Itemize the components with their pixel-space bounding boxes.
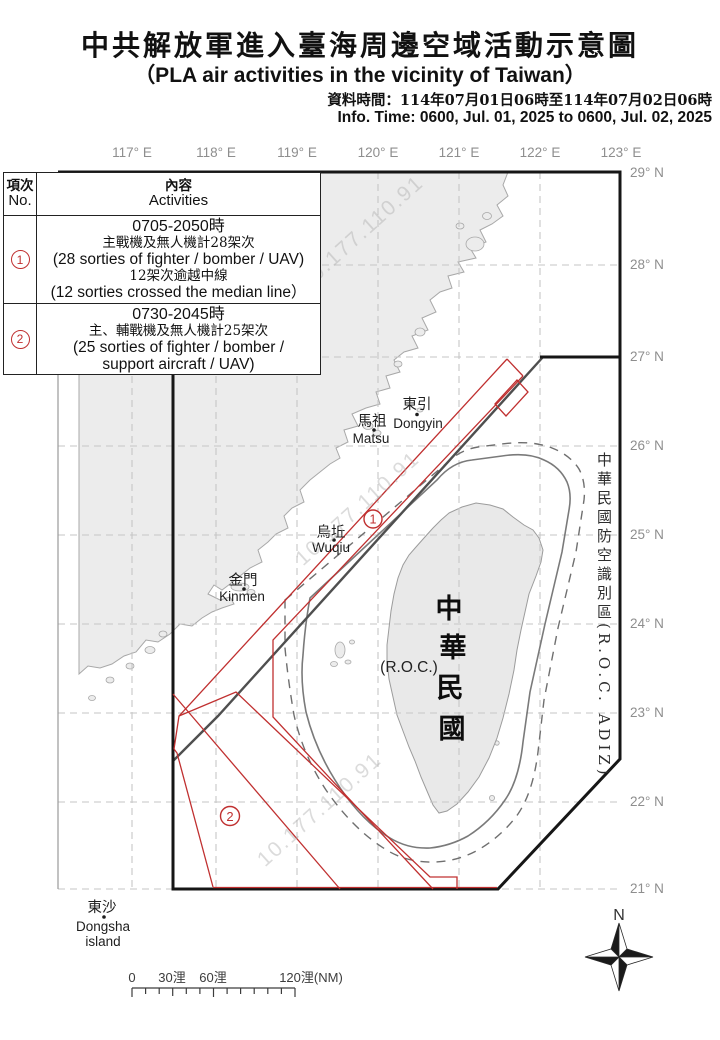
svg-text:2: 2	[226, 809, 233, 824]
place-wuqiu: 烏坵 Wuqiu	[312, 524, 350, 555]
row-2-en-sorties-1: (25 sorties of fighter / bomber /	[73, 339, 284, 356]
svg-text:Wuqiu: Wuqiu	[312, 540, 350, 555]
svg-text:120° E: 120° E	[358, 145, 399, 160]
pla-activity-map-page: 中共解放軍進入臺海周邊空域活動示意圖 （PLA air activities i…	[0, 0, 720, 1040]
table-row-1-content: 0705-2050時 主戰機及無人機計28架次 (28 sorties of f…	[37, 216, 320, 304]
roc-abbrev-label: (R.O.C.)	[380, 659, 438, 676]
compass-rose: N	[585, 907, 653, 991]
latitude-labels: 29° N 28° N 27° N 26° N 25° N 24° N 23° …	[630, 165, 664, 896]
table-header-activities: 內容 Activities	[37, 173, 320, 216]
svg-text:26° N: 26° N	[630, 438, 664, 453]
table-row-1-no: 1	[4, 216, 37, 304]
svg-text:25° N: 25° N	[630, 527, 664, 542]
svg-text:60浬: 60浬	[199, 970, 226, 985]
row-2-en-sorties-2: support aircraft / UAV)	[102, 356, 254, 373]
svg-text:island: island	[85, 934, 120, 949]
svg-text:烏坵: 烏坵	[317, 524, 346, 541]
svg-text:Kinmen: Kinmen	[219, 589, 265, 604]
svg-text:122° E: 122° E	[520, 145, 561, 160]
svg-text:123° E: 123° E	[601, 145, 642, 160]
svg-text:東沙: 東沙	[88, 899, 117, 916]
longitude-labels: 117° E 118° E 119° E 120° E 121° E 122° …	[112, 145, 641, 160]
svg-text:中: 中	[436, 594, 463, 625]
table-row-2-content: 0730-2045時 主、輔戰機及無人機計25架次 (25 sorties of…	[37, 304, 320, 374]
svg-text:22° N: 22° N	[630, 794, 664, 809]
activity-area-1-outline	[507, 359, 523, 376]
row-1-en-median: (12 sorties crossed the median line）	[51, 284, 307, 301]
svg-text:0: 0	[128, 970, 135, 985]
place-matsu: 馬祖 Matsu	[353, 413, 390, 446]
row-1-time: 0705-2050時	[132, 218, 225, 235]
row-1-zh-median: 12架次逾越中線	[129, 268, 227, 284]
svg-text:117° E: 117° E	[112, 145, 152, 160]
header-no-en: No.	[8, 193, 31, 209]
row-2-zh-sorties: 主、輔戰機及無人機計25架次	[89, 323, 268, 339]
svg-text:金門: 金門	[229, 572, 258, 589]
svg-text:東引: 東引	[403, 396, 432, 413]
header-activities-zh: 內容	[165, 179, 192, 193]
svg-text:118° E: 118° E	[196, 145, 236, 160]
row-1-number-badge: 1	[11, 250, 30, 269]
svg-text:27° N: 27° N	[630, 349, 664, 364]
header-no-zh: 項次	[7, 179, 34, 193]
svg-text:國: 國	[439, 714, 466, 745]
svg-text:馬祖: 馬祖	[358, 413, 387, 430]
row-2-time: 0730-2045時	[132, 306, 225, 323]
svg-text:華: 華	[440, 633, 467, 664]
table-header-no: 項次 No.	[4, 173, 37, 216]
place-dongsha: 東沙 Dongsha island	[76, 899, 131, 949]
activity-marker-1: 1	[364, 510, 382, 528]
row-1-zh-sorties: 主戰機及無人機計28架次	[102, 235, 254, 251]
svg-text:30浬: 30浬	[158, 970, 185, 985]
header-activities-en: Activities	[149, 193, 208, 209]
table-row-2-no: 2	[4, 304, 37, 374]
scale-bar-labels: 0 30浬 60浬 120浬(NM)	[128, 970, 342, 985]
svg-text:23° N: 23° N	[630, 705, 664, 720]
activity-marker-2: 2	[221, 807, 240, 826]
svg-text:21° N: 21° N	[630, 881, 664, 896]
compass-n-label: N	[613, 907, 625, 924]
svg-text:民: 民	[437, 673, 464, 704]
svg-text:Matsu: Matsu	[353, 431, 390, 446]
scale-bar	[132, 988, 295, 997]
svg-text:Dongsha: Dongsha	[76, 919, 131, 934]
activities-table: 項次 No. 內容 Activities 1 0705-2050時 主戰機及無人…	[3, 172, 321, 375]
svg-text:Dongyin: Dongyin	[393, 416, 443, 431]
adiz-boundary-label: 中華民國防空識別區(R.O.C. ADIZ)	[594, 452, 615, 872]
row-1-en-sorties: (28 sorties of fighter / bomber / UAV)	[53, 251, 304, 268]
svg-text:1: 1	[370, 513, 377, 527]
svg-text:120浬(NM): 120浬(NM)	[279, 970, 343, 985]
place-dongyin: 東引 Dongyin	[393, 396, 443, 431]
svg-text:28° N: 28° N	[630, 257, 664, 272]
svg-text:24° N: 24° N	[630, 616, 664, 631]
svg-text:29° N: 29° N	[630, 165, 664, 180]
row-2-number-badge: 2	[11, 330, 30, 349]
svg-text:119° E: 119° E	[277, 145, 317, 160]
svg-text:121° E: 121° E	[439, 145, 480, 160]
